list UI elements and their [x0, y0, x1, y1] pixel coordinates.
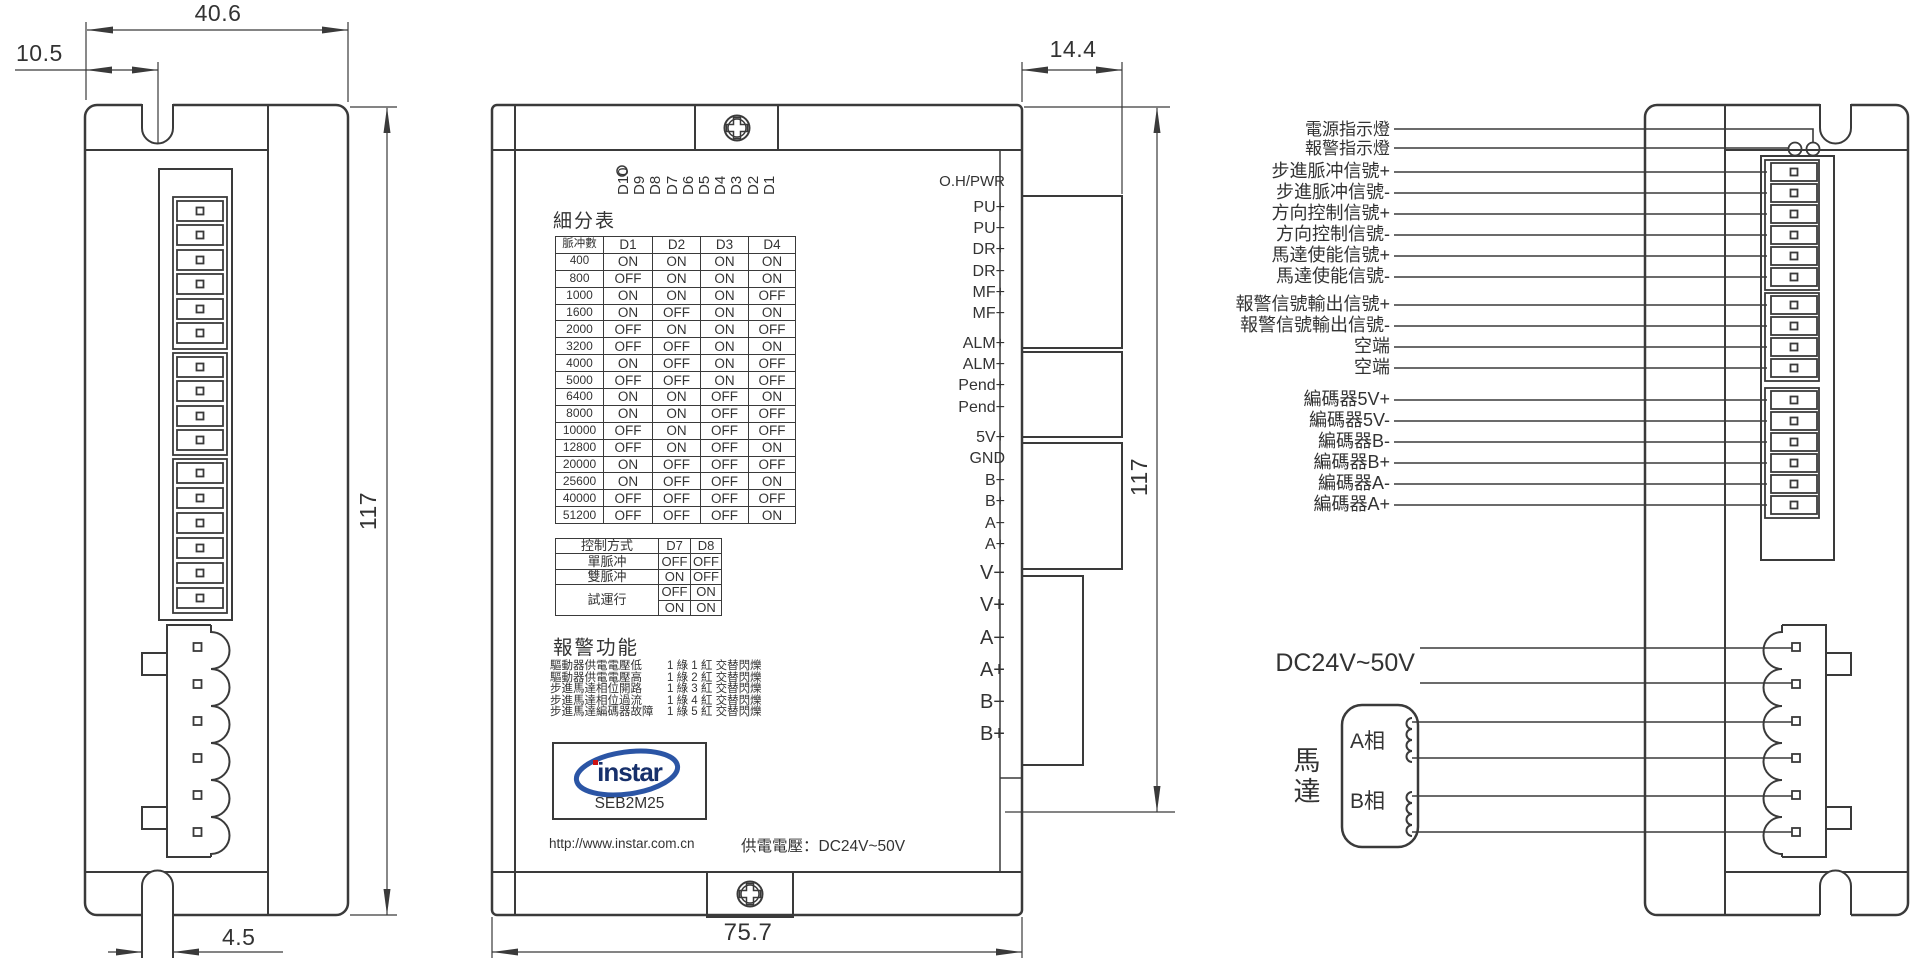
coil-a-icon — [1407, 718, 1412, 762]
table-row: 51200OFFOFFOFFON — [556, 507, 796, 524]
table-cell: ON — [653, 321, 701, 338]
column-header: D4 — [749, 237, 796, 254]
wiring-lines — [1394, 129, 1813, 832]
wiring-label: 空端 — [1235, 357, 1390, 378]
table-cell: OFF — [659, 554, 691, 569]
microstep-table-title: 細分表 — [553, 206, 616, 233]
table-cell: ON — [749, 389, 796, 406]
dip-label-d2: D2 — [746, 139, 762, 195]
column-header: D7 — [659, 539, 691, 554]
screw-icon — [725, 116, 750, 141]
table-cell: OFF — [604, 270, 653, 287]
table-cell: 3200 — [556, 338, 604, 355]
table-cell: ON — [749, 507, 796, 524]
table-cell: OFF — [701, 405, 749, 422]
table-cell: OFF — [653, 304, 701, 321]
table-cell: OFF — [749, 490, 796, 507]
dip-label-d1: D1 — [762, 139, 778, 195]
table-row: 4000ONOFFONOFF — [556, 355, 796, 372]
dim-width-top: 40.6 — [178, 0, 258, 27]
table-cell: 雙脈冲 — [556, 569, 659, 584]
terminal-label: PU− — [973, 218, 1005, 239]
table-cell: ON — [653, 253, 701, 270]
table-cell: OFF — [653, 355, 701, 372]
table-cell: ON — [701, 372, 749, 389]
terminal-label: B+ — [969, 491, 1005, 512]
table-cell: OFF — [691, 554, 722, 569]
terminal-label: DR+ — [973, 239, 1005, 260]
table-cell: ON — [701, 355, 749, 372]
dip-label-d7: D7 — [665, 139, 681, 195]
table-cell: 4000 — [556, 355, 604, 372]
table-row: 40000OFFOFFOFFOFF — [556, 490, 796, 507]
wiring-label: 步進脈冲信號- — [1271, 182, 1390, 203]
table-row: 1000ONONONOFF — [556, 287, 796, 304]
table-cell: OFF — [701, 422, 749, 439]
terminal-label: PU+ — [973, 197, 1005, 218]
table-cell: 2000 — [556, 321, 604, 338]
status-led-label: O.H/PWR — [939, 172, 1005, 192]
table-cell: ON — [604, 389, 653, 406]
table-cell: 25600 — [556, 473, 604, 490]
table-row: 2000OFFONONOFF — [556, 321, 796, 338]
table-row: 400ONONONON — [556, 253, 796, 270]
terminal-label: GND — [969, 448, 1005, 469]
table-cell: ON — [701, 338, 749, 355]
dim-height-left: 117 — [355, 487, 381, 535]
table-cell: ON — [604, 287, 653, 304]
table-cell: OFF — [749, 405, 796, 422]
table-cell: 12800 — [556, 439, 604, 456]
table-row: 單脈冲 OFF OFF — [556, 554, 722, 569]
table-cell: OFF — [604, 338, 653, 355]
table-cell: 10000 — [556, 422, 604, 439]
table-cell: ON — [701, 304, 749, 321]
dc-supply-label: DC24V~50V — [1275, 649, 1415, 678]
wiring-label: 馬達使能信號- — [1271, 266, 1390, 287]
table-cell: OFF — [604, 372, 653, 389]
table-row: 8000ONONOFFOFF — [556, 405, 796, 422]
table-cell: 8000 — [556, 405, 604, 422]
coil-b-icon — [1407, 792, 1412, 836]
table-row: 10000OFFONOFFOFF — [556, 422, 796, 439]
table-row: 5000OFFOFFONOFF — [556, 372, 796, 389]
table-cell: 6400 — [556, 389, 604, 406]
logo-dot-icon — [593, 760, 598, 765]
table-cell: 800 — [556, 270, 604, 287]
table-cell: ON — [749, 253, 796, 270]
table-row: 20000ONOFFOFFOFF — [556, 456, 796, 473]
table-cell: OFF — [653, 456, 701, 473]
wiring-label: 電源指示燈 — [1305, 120, 1390, 139]
wiring-label: 報警指示燈 — [1305, 139, 1390, 158]
column-header: D8 — [691, 539, 722, 554]
table-cell: OFF — [653, 338, 701, 355]
table-cell: OFF — [701, 439, 749, 456]
column-header: 控制方式 — [556, 539, 659, 554]
power-terminal-labels: V− V+ A− A+ B− B+ — [980, 557, 1005, 751]
table-cell: OFF — [749, 422, 796, 439]
table-cell: ON — [653, 405, 701, 422]
table-cell: OFF — [749, 456, 796, 473]
dip-label-d8: D8 — [648, 139, 664, 195]
table-cell: OFF — [604, 321, 653, 338]
table-cell: 1000 — [556, 287, 604, 304]
table-cell: ON — [653, 287, 701, 304]
terminal-label: A+ — [980, 654, 1005, 686]
dip-label-d6: D6 — [681, 139, 697, 195]
table-cell: OFF — [653, 473, 701, 490]
table-cell: ON — [701, 287, 749, 304]
table-cell: ON — [701, 270, 749, 287]
dip-label-d4: D4 — [713, 139, 729, 195]
alarm-output-labels: 報警信號輸出信號+ 報警信號輸出信號- 空端 空端 — [1235, 294, 1390, 378]
table-cell: OFF — [701, 389, 749, 406]
alarm-pattern: 1 綠 1 紅 交替閃爍 — [667, 661, 762, 673]
table-cell: ON — [701, 321, 749, 338]
model-number: SEB2M25 — [554, 795, 705, 813]
table-cell: OFF — [701, 490, 749, 507]
table-cell: OFF — [653, 372, 701, 389]
phase-b-label: B相 — [1350, 785, 1385, 815]
alarm-list: 驅動器供電電壓低1 綠 1 紅 交替閃爍 驅動器供電電壓高1 綠 2 紅 交替閃… — [550, 661, 762, 719]
terminal-label: MF− — [973, 303, 1005, 324]
wiring-label: 編碼器B+ — [1303, 452, 1390, 473]
indicator-labels: 電源指示燈 報警指示燈 — [1305, 120, 1390, 158]
wiring-label: 編碼器A+ — [1303, 494, 1390, 515]
alarm-terminal-labels: ALM+ ALM− Pend+ Pend− — [958, 333, 1005, 418]
table-cell: ON — [691, 600, 722, 615]
wiring-label: 編碼器5V- — [1303, 410, 1390, 431]
table-cell: ON — [749, 304, 796, 321]
table-cell: OFF — [604, 439, 653, 456]
table-row: 3200OFFOFFONON — [556, 338, 796, 355]
table-cell: ON — [749, 439, 796, 456]
table-row: 800OFFONONON — [556, 270, 796, 287]
table-cell: ON — [604, 304, 653, 321]
table-cell: ON — [653, 422, 701, 439]
table-cell: 試運行 — [556, 585, 659, 616]
dim-notch-offset: 10.5 — [16, 40, 63, 67]
website-url: http://www.instar.com.cn — [549, 836, 695, 851]
table-cell: OFF — [653, 490, 701, 507]
table-cell: ON — [659, 600, 691, 615]
drawing-linework — [0, 0, 1925, 965]
table-cell: 20000 — [556, 456, 604, 473]
table-cell: ON — [691, 585, 722, 600]
right-side-view — [1645, 102, 1908, 917]
table-row: 6400ONONOFFON — [556, 389, 796, 406]
table-cell: 40000 — [556, 490, 604, 507]
control-mode-table: 控制方式 D7 D8 單脈冲 OFF OFF 雙脈冲 ON OFF 試運行 OF… — [555, 538, 722, 616]
dip-label-d10: D10 — [616, 139, 632, 195]
alarm-row: 驅動器供電電壓低1 綠 1 紅 交替閃爍 — [550, 661, 762, 673]
dip-label-d3: D3 — [729, 139, 745, 195]
table-cell: 1600 — [556, 304, 604, 321]
table-cell: ON — [653, 439, 701, 456]
table-cell: OFF — [749, 372, 796, 389]
terminal-label: B− — [980, 686, 1005, 718]
wiring-label: 馬達使能信號+ — [1271, 245, 1390, 266]
encoder-wire-labels: 編碼器5V+ 編碼器5V- 編碼器B- 編碼器B+ 編碼器A- 編碼器A+ — [1303, 389, 1390, 515]
column-header: D3 — [701, 237, 749, 254]
terminal-label: B+ — [980, 718, 1005, 750]
motor-label: 馬達 — [1290, 746, 1324, 808]
table-row: 1600ONOFFONON — [556, 304, 796, 321]
dim-width-bottom: 75.7 — [706, 919, 790, 947]
dip-label-d5: D5 — [697, 139, 713, 195]
dim-terminal-depth: 14.4 — [1032, 36, 1114, 63]
table-cell: ON — [604, 355, 653, 372]
table-cell: ON — [653, 270, 701, 287]
table-cell: OFF — [701, 507, 749, 524]
table-cell: OFF — [691, 569, 722, 584]
wiring-label: 編碼器5V+ — [1303, 389, 1390, 410]
table-cell: 400 — [556, 253, 604, 270]
terminal-label: V+ — [980, 589, 1005, 621]
wiring-label: 步進脈冲信號+ — [1271, 161, 1390, 182]
column-header: D1 — [604, 237, 653, 254]
terminal-label: Pend+ — [958, 375, 1005, 396]
wiring-label: 方向控制信號+ — [1271, 203, 1390, 224]
alarm-section-title: 報警功能 — [553, 631, 639, 660]
terminal-label: 5V+ — [969, 427, 1005, 448]
table-header-row: 控制方式 D7 D8 — [556, 539, 722, 554]
alarm-name: 驅動器供電電壓低 — [550, 661, 667, 673]
table-cell: ON — [653, 389, 701, 406]
table-cell: 單脈冲 — [556, 554, 659, 569]
table-cell: OFF — [749, 355, 796, 372]
table-cell: ON — [604, 456, 653, 473]
alarm-row: 步進馬達編碼器故障1 綠 5 紅 交替閃爍 — [550, 707, 762, 719]
table-cell: OFF — [659, 585, 691, 600]
microstep-table: 脈冲數 D1 D2 D3 D4 400ONONONON800OFFONONON1… — [555, 236, 796, 524]
wiring-label: 報警信號輸出信號- — [1235, 315, 1390, 336]
engineering-drawing-canvas: 40.6 10.5 14.4 117 117 75.7 4.5 D10 D9 D… — [0, 0, 1925, 965]
alarm-pattern: 1 綠 5 紅 交替閃爍 — [667, 707, 762, 719]
wiring-label: 空端 — [1235, 336, 1390, 357]
table-cell: ON — [604, 473, 653, 490]
terminal-label: A− — [969, 513, 1005, 534]
table-cell: ON — [604, 253, 653, 270]
table-cell: ON — [604, 405, 653, 422]
table-cell: OFF — [604, 507, 653, 524]
terminal-label: B− — [969, 470, 1005, 491]
table-cell: ON — [749, 338, 796, 355]
dim-height-front: 117 — [1126, 453, 1152, 501]
column-header: 脈冲數 — [556, 237, 604, 254]
terminal-label: DR− — [973, 261, 1005, 282]
wiring-label: 報警信號輸出信號+ — [1235, 294, 1390, 315]
table-cell: 5000 — [556, 372, 604, 389]
table-row: 25600ONOFFOFFON — [556, 473, 796, 490]
table-header-row: 脈冲數 D1 D2 D3 D4 — [556, 237, 796, 254]
supply-voltage-note: 供電電壓：DC24V~50V — [741, 834, 905, 856]
brand-logo: instar SEB2M25 — [552, 742, 707, 820]
table-cell: OFF — [653, 507, 701, 524]
table-cell: OFF — [604, 422, 653, 439]
wiring-label: 編碼器A- — [1303, 473, 1390, 494]
wiring-label: 方向控制信號- — [1271, 224, 1390, 245]
table-cell: ON — [749, 473, 796, 490]
table-cell: ON — [701, 253, 749, 270]
table-cell: OFF — [749, 321, 796, 338]
alarm-name: 步進馬達編碼器故障 — [550, 707, 667, 719]
table-cell: OFF — [701, 473, 749, 490]
table-row: 雙脈冲 ON OFF — [556, 569, 722, 584]
table-cell: ON — [749, 270, 796, 287]
terminal-label: ALM− — [958, 354, 1005, 375]
phase-a-label: A相 — [1350, 725, 1385, 755]
table-row: 12800OFFONOFFON — [556, 439, 796, 456]
terminal-label: A− — [980, 622, 1005, 654]
terminal-label: Pend− — [958, 397, 1005, 418]
dim-slot-width: 4.5 — [222, 924, 255, 951]
terminal-label: MF+ — [973, 282, 1005, 303]
signal-terminal-labels: PU+ PU− DR+ DR− MF+ MF− — [973, 197, 1005, 324]
table-cell: OFF — [604, 490, 653, 507]
screw-icon — [738, 882, 763, 907]
table-row: 試運行 OFF ON — [556, 585, 722, 600]
wiring-label: 編碼器B- — [1303, 431, 1390, 452]
terminal-label: A+ — [969, 534, 1005, 555]
left-side-view — [85, 102, 348, 958]
table-cell: 51200 — [556, 507, 604, 524]
encoder-terminal-labels: 5V+ GND B− B+ A− A+ — [969, 427, 1005, 555]
terminal-label: ALM+ — [958, 333, 1005, 354]
signal-wire-labels: 步進脈冲信號+ 步進脈冲信號- 方向控制信號+ 方向控制信號- 馬達使能信號+ … — [1271, 161, 1390, 287]
dip-label-d9: D9 — [632, 139, 648, 195]
column-header: D2 — [653, 237, 701, 254]
table-cell: OFF — [701, 456, 749, 473]
table-cell: ON — [659, 569, 691, 584]
brand-name: instar — [554, 757, 705, 788]
terminal-label: V− — [980, 557, 1005, 589]
table-cell: OFF — [749, 287, 796, 304]
